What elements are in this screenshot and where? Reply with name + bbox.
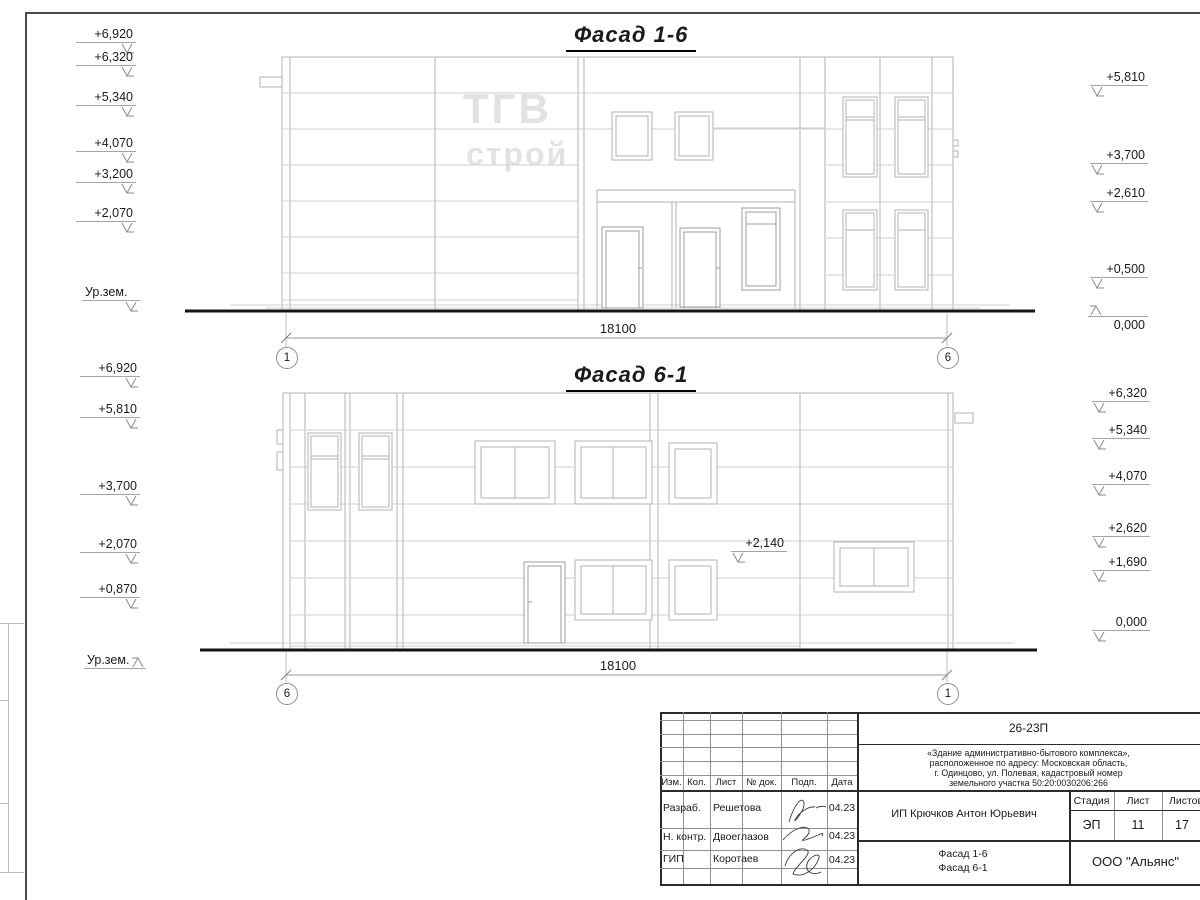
- elevation-arrow-icon: [1093, 485, 1107, 497]
- elevation-mark: +3,700: [80, 479, 140, 495]
- organization-name: ООО "Альянс": [1071, 854, 1200, 869]
- elevation-mark: +5,340: [1092, 423, 1150, 439]
- facade-6-1-drawing: [180, 390, 1040, 700]
- elevation-mark-inner: +2,140: [731, 536, 787, 552]
- elevation-mark: +4,070: [76, 136, 136, 152]
- elevation-arrow-icon: [121, 152, 135, 164]
- axis-circle-6: 6: [937, 347, 959, 369]
- list-label: Лист: [1114, 795, 1162, 807]
- sheet-frame-left: [25, 12, 27, 900]
- sheet-title-1: Фасад 1-6: [857, 848, 1069, 860]
- stage-label: Стадия: [1069, 795, 1114, 807]
- ground-level-mark: Ур.зем.: [82, 285, 140, 301]
- axis-circle-1: 1: [937, 683, 959, 705]
- project-line-2: расположенное по адресу: Московская обла…: [857, 758, 1200, 768]
- drawing-sheet: { "facade16": { "title": "Фасад 1-6", "l…: [0, 0, 1200, 900]
- elevation-mark: +1,690: [1092, 555, 1150, 571]
- elevation-arrow-icon: [1091, 202, 1105, 214]
- elevation-arrow-icon: [1093, 631, 1107, 643]
- elevation-arrow-icon: [121, 222, 135, 234]
- elevation-arrow-icon: [125, 598, 139, 610]
- name-gip: Коротаев: [713, 853, 758, 865]
- elevation-mark: +2,620: [1092, 521, 1150, 537]
- list-value: 11: [1114, 818, 1162, 832]
- elevation-mark: +6,320: [1092, 386, 1150, 402]
- role-nkontr: Н. контр.: [663, 831, 706, 843]
- zero-level-mark: 0,000: [1092, 615, 1150, 631]
- elevation-arrow-icon: [1093, 439, 1107, 451]
- elevation-arrow-icon: [125, 301, 139, 313]
- elevation-arrow-icon: [125, 553, 139, 565]
- elevation-mark: +6,920: [76, 27, 136, 43]
- elevation-mark: +2,070: [80, 537, 140, 553]
- sheet-frame-top: [25, 12, 1200, 14]
- date-gip: 04.23: [827, 854, 857, 866]
- elevation-mark: +3,200: [76, 167, 136, 183]
- elevation-mark: +5,340: [76, 90, 136, 106]
- elevation-mark: +0,870: [80, 582, 140, 598]
- elevation-mark: +6,320: [76, 50, 136, 66]
- elevation-arrow-icon: [121, 66, 135, 78]
- elevation-arrow-up-icon: [132, 656, 146, 668]
- name-razrab: Решетова: [713, 802, 761, 814]
- role-gip: ГИП: [663, 853, 684, 865]
- elevation-arrow-icon: [1093, 571, 1107, 583]
- zero-level-mark: 0,000: [1088, 303, 1148, 333]
- elevation-mark: +6,920: [80, 361, 140, 377]
- elevation-arrow-icon: [1091, 86, 1105, 98]
- project-line-4: земельного участка 50:20:0030206:266: [857, 778, 1200, 788]
- elevation-arrow-icon: [121, 106, 135, 118]
- role-razrab: Разраб.: [663, 802, 701, 814]
- date-razrab: 04.23: [827, 802, 857, 814]
- elevation-arrow-icon: [125, 377, 139, 389]
- elevation-arrow-icon: [1093, 537, 1107, 549]
- elevation-mark: +2,610: [1090, 186, 1148, 202]
- col-header-izm: Изм.: [660, 777, 683, 788]
- stage-value: ЭП: [1069, 818, 1114, 832]
- listov-value: 17: [1162, 818, 1200, 832]
- elevation-arrow-up-icon: [1090, 304, 1104, 316]
- elevation-arrow-icon: [125, 495, 139, 507]
- col-header-list: Лист: [710, 777, 742, 788]
- project-line-1: «Здание административно-бытового комплек…: [857, 748, 1200, 758]
- elevation-arrow-icon: [125, 418, 139, 430]
- col-header-doc: № док.: [742, 777, 781, 788]
- elevation-arrow-icon: [1091, 164, 1105, 176]
- sheet-title-2: Фасад 6-1: [857, 862, 1069, 874]
- axis-circle-6: 6: [276, 683, 298, 705]
- elevation-mark: +0,500: [1090, 262, 1148, 278]
- listov-label: Листов: [1162, 795, 1200, 807]
- elevation-mark: +2,070: [76, 206, 136, 222]
- elevation-arrow-icon: [121, 183, 135, 195]
- date-nkontr: 04.23: [827, 830, 857, 842]
- ground-level-mark: Ур.зем.: [84, 653, 146, 669]
- elevation-arrow-icon: [1093, 402, 1107, 414]
- doc-code: 26-23П: [857, 721, 1200, 735]
- elevation-mark: +3,700: [1090, 148, 1148, 164]
- elevation-mark: +4,070: [1092, 469, 1150, 485]
- signature-nkontr-gip: [779, 822, 827, 880]
- elevation-arrow-icon: [1091, 278, 1105, 290]
- title-block: Изм. Кол. Лист № док. Подп. Дата Разраб.…: [660, 712, 1200, 886]
- facade-6-1-dimension: 18100: [578, 658, 658, 673]
- client-name: ИП Крючков Антон Юрьевич: [859, 808, 1069, 820]
- col-header-kol: Кол.: [683, 777, 710, 788]
- elevation-mark: +5,810: [80, 402, 140, 418]
- facade-1-6-dimension: 18100: [578, 321, 658, 336]
- col-header-data: Дата: [827, 777, 857, 788]
- col-header-podp: Подп.: [781, 777, 827, 788]
- elevation-mark: +5,810: [1090, 70, 1148, 86]
- project-line-3: г. Одинцово, ул. Полевая, кадастровый но…: [857, 768, 1200, 778]
- axis-circle-1: 1: [276, 347, 298, 369]
- facade-6-1-title: Фасад 6-1: [566, 362, 696, 392]
- elevation-arrow-icon: [732, 552, 746, 564]
- facade-1-6-title: Фасад 1-6: [566, 22, 696, 52]
- name-nkontr: Двоеглазов: [713, 831, 769, 843]
